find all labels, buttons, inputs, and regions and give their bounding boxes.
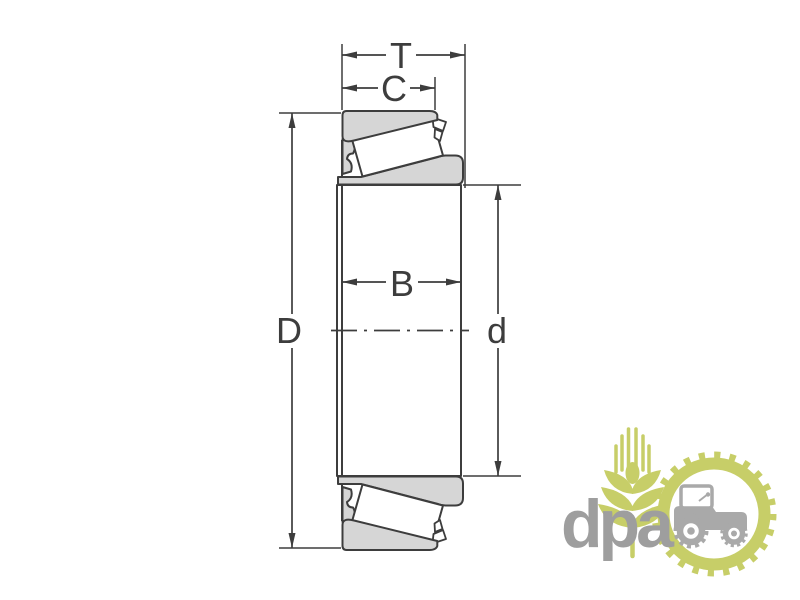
dimension-label-d: d xyxy=(487,310,507,351)
tractor-front-wheel xyxy=(723,522,746,545)
arrowhead-right xyxy=(420,85,435,92)
bearing-bottom-half xyxy=(338,477,463,551)
arrowhead-down xyxy=(495,461,502,476)
tractor-mirror-dot xyxy=(706,492,710,496)
arrowhead-left xyxy=(342,85,357,92)
dimension-C: C xyxy=(342,68,435,110)
tractor-icon xyxy=(674,486,747,546)
dimension-label-C: C xyxy=(381,68,407,109)
dimension-label-B: B xyxy=(390,263,414,304)
arrowhead-left xyxy=(342,52,357,59)
bearing-top-half xyxy=(338,111,463,185)
arrowhead-right xyxy=(450,52,465,59)
tractor-rear-wheel xyxy=(676,516,706,546)
tractor-cab xyxy=(681,486,712,508)
dimension-d: d xyxy=(463,185,521,476)
arrowhead-up xyxy=(495,185,502,200)
bearing-technical-diagram: T C B D xyxy=(0,0,800,600)
screenshot-root: T C B D xyxy=(0,0,800,600)
dimension-label-D: D xyxy=(276,310,302,351)
arrowhead-up xyxy=(289,113,296,128)
arrowhead-down xyxy=(289,533,296,548)
dpa-wordmark: dpa xyxy=(561,486,675,562)
dpa-watermark-logo: dpa xyxy=(561,429,773,573)
bearing-cross-section xyxy=(331,111,469,550)
